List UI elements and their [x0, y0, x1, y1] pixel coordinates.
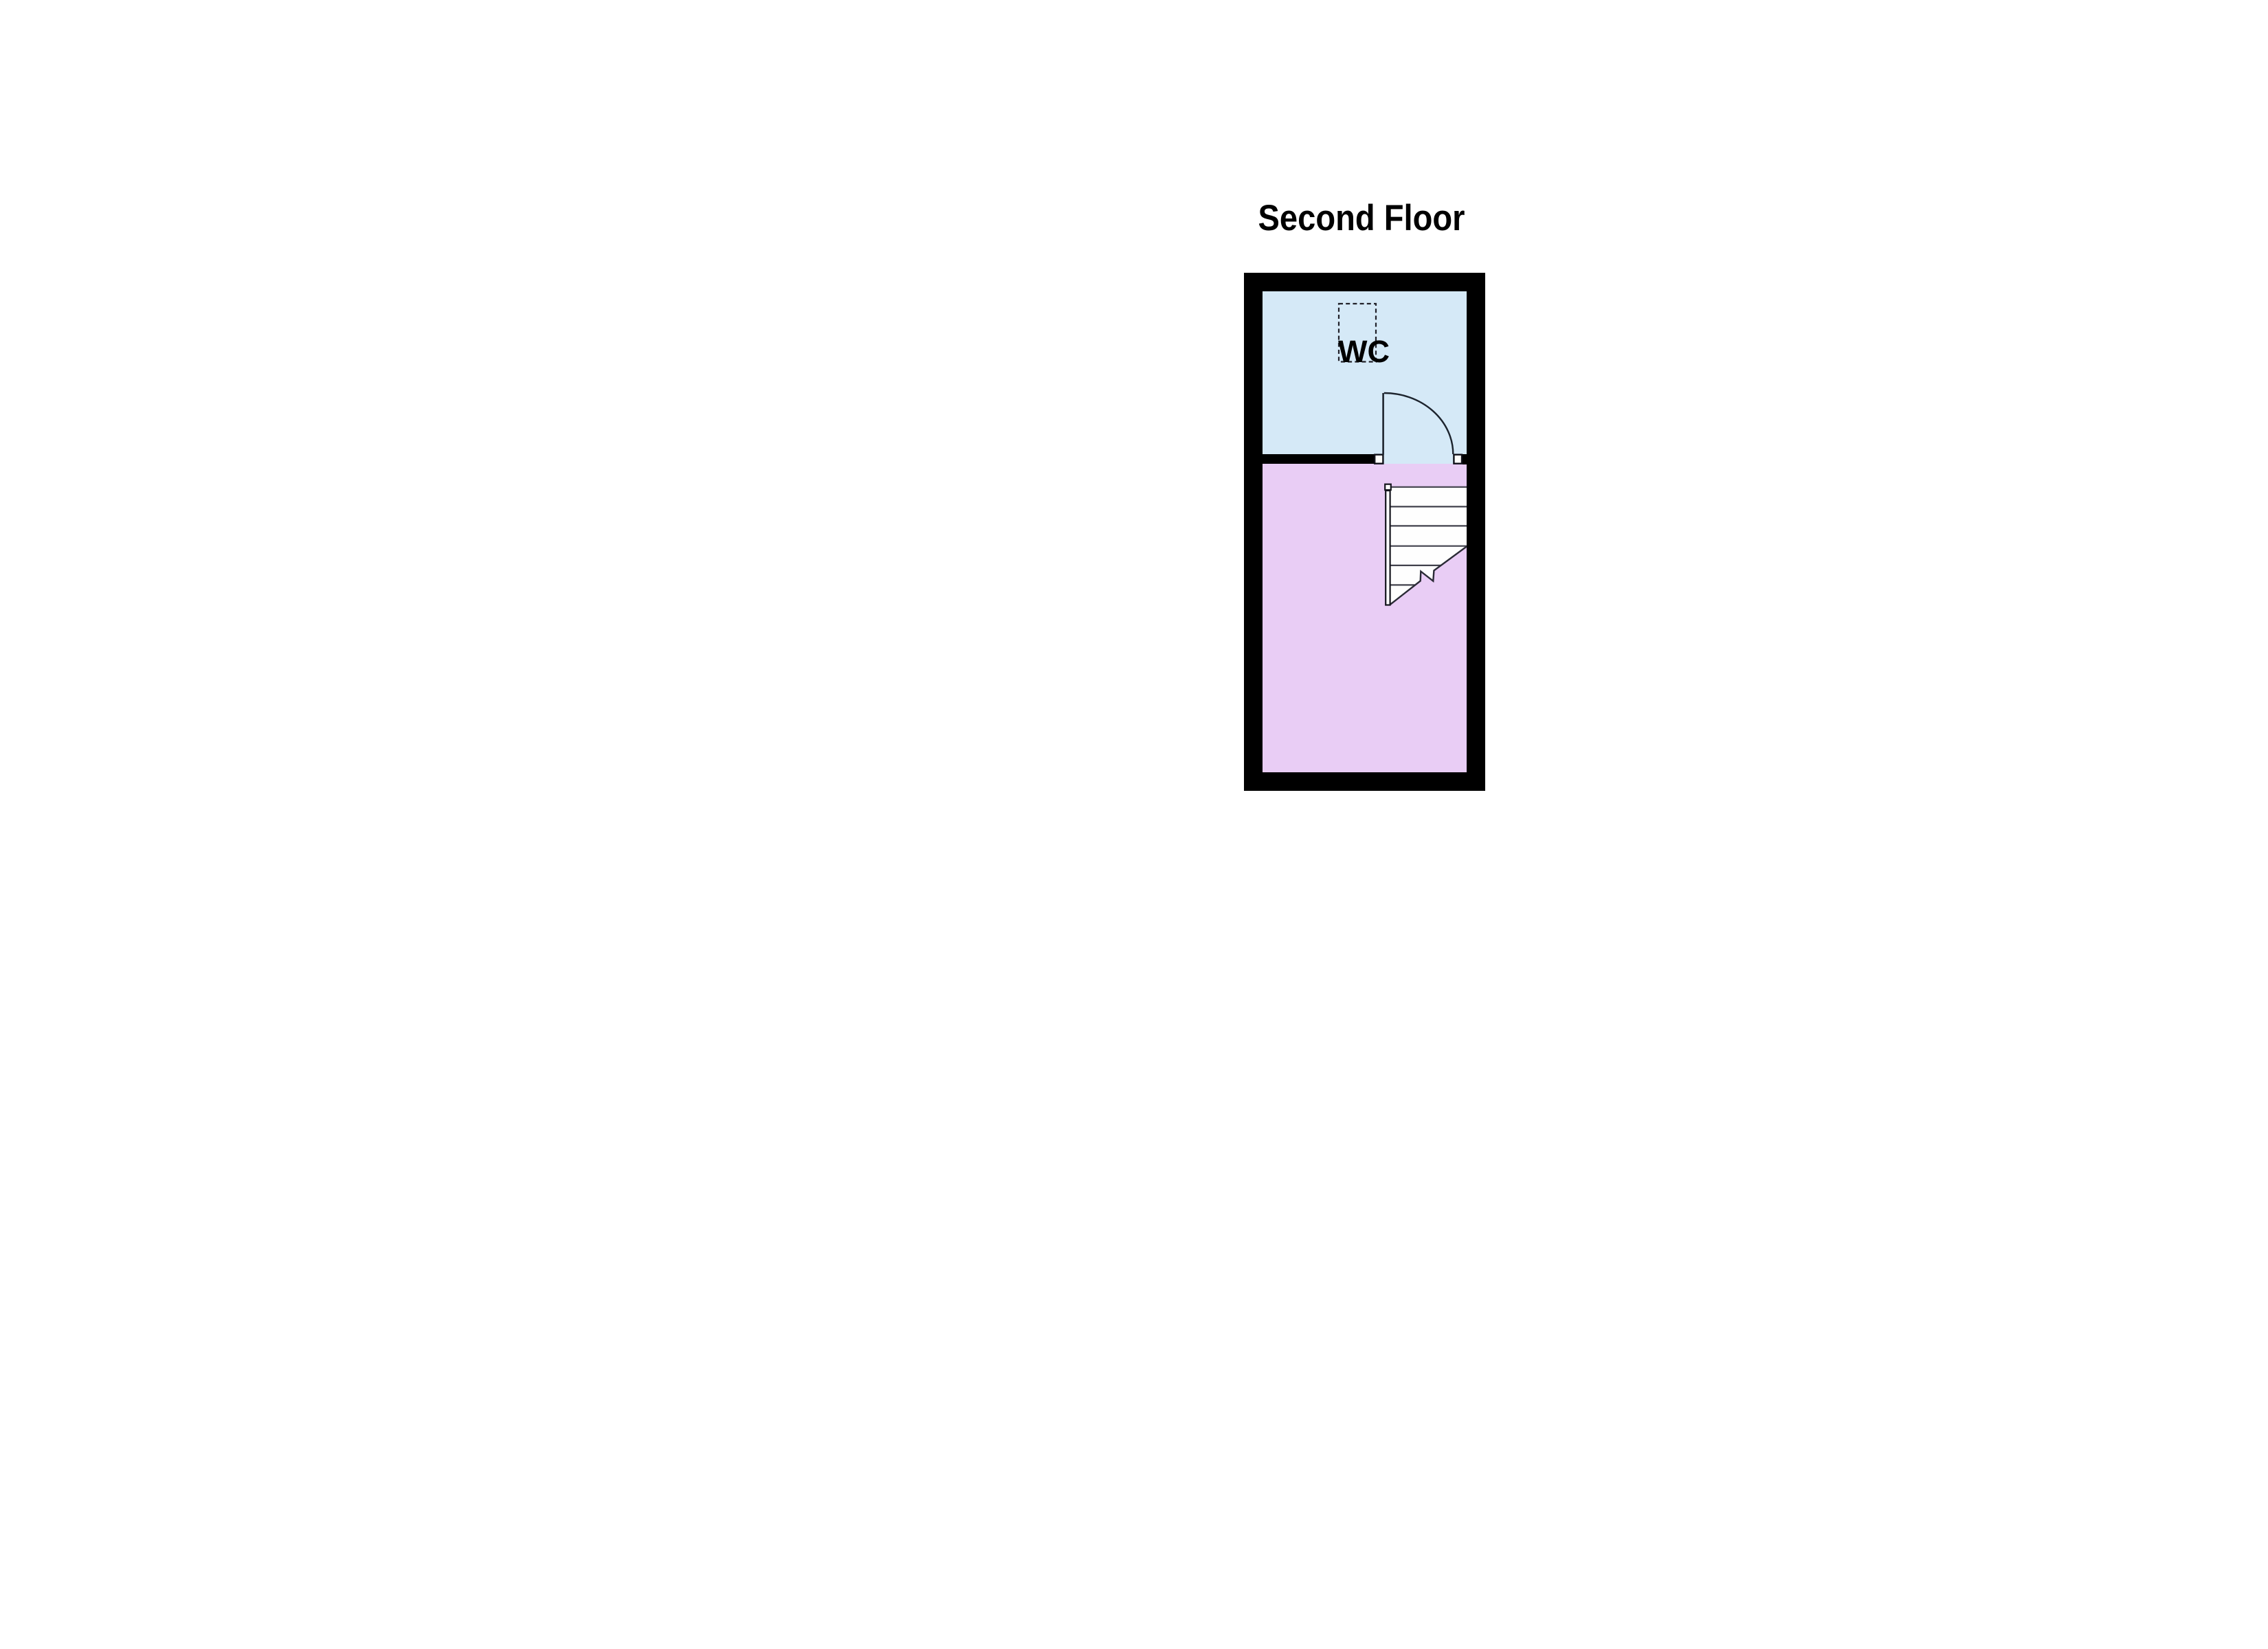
svg-text:Second Floor: Second Floor: [1258, 198, 1465, 238]
svg-text:WC: WC: [1338, 334, 1390, 369]
